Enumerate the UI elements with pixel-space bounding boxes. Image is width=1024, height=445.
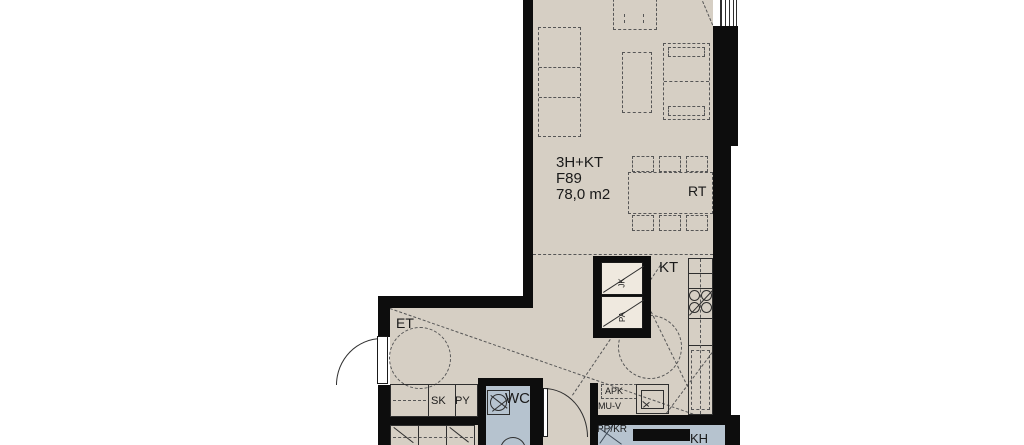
closet-rail	[393, 400, 426, 401]
stove-burner	[701, 302, 712, 313]
floor-plan: JK PA OH 3H+KT F89 78,0 m2 RT KT ET SK P…	[0, 0, 1024, 445]
wall	[530, 378, 543, 445]
unit-area: 78,0 m2	[556, 187, 610, 202]
dining-chair	[659, 156, 681, 172]
coffee-table	[622, 52, 652, 113]
room-label-dining: RT	[688, 184, 706, 198]
stove-burner	[689, 290, 700, 301]
room-label-living: OH	[676, 0, 699, 1]
room-label-wc: WC	[505, 391, 530, 406]
wall	[713, 26, 738, 146]
closet-divider	[428, 384, 429, 417]
window	[720, 0, 737, 26]
wall	[378, 385, 390, 445]
freezer-label: PA	[618, 307, 628, 323]
room-label-bathroom: KH	[690, 432, 708, 445]
sofa-divider-2	[539, 97, 580, 98]
wall	[523, 0, 533, 300]
upper-cabinet	[691, 350, 710, 410]
wall	[713, 146, 731, 424]
media-unit-shelf-1	[668, 47, 705, 57]
wall	[590, 383, 598, 445]
appliance-label-dishwasher: APK	[605, 387, 623, 396]
dining-chair	[632, 215, 654, 231]
closet-divider	[446, 425, 447, 445]
closet-label-py: PY	[455, 396, 470, 407]
wall	[478, 378, 486, 445]
entry-door-swing	[336, 338, 382, 385]
room-label-kitchen: KT	[659, 260, 678, 275]
sofa-divider-1	[539, 67, 580, 68]
wall	[378, 417, 486, 425]
table-top-mark-1	[624, 14, 625, 23]
appliance-label-microwave: MU-V	[598, 402, 621, 411]
table-top-mark-2	[643, 14, 644, 23]
ceiling-line-horizontal	[533, 254, 713, 255]
sofa	[538, 27, 581, 137]
wall	[633, 429, 690, 441]
room-label-hall: ET	[396, 316, 414, 330]
dining-chair	[632, 156, 654, 172]
media-unit-shelf-2	[668, 106, 705, 116]
entry-door-leaf	[377, 336, 388, 384]
closet-label-sk: SK	[431, 396, 446, 407]
dining-chair	[686, 215, 708, 231]
unit-type: 3H+KT	[556, 155, 603, 170]
appliance-label-laundry: PP/KR	[597, 425, 627, 435]
fridge-label: JK	[618, 273, 627, 289]
unit-code: F89	[556, 171, 582, 186]
dining-chair	[686, 156, 708, 172]
closet-divider	[418, 425, 419, 445]
turning-circle-hall	[389, 327, 451, 389]
table-top	[613, 0, 657, 30]
wall	[378, 296, 533, 308]
media-unit-divider	[664, 81, 709, 82]
dining-chair	[659, 215, 681, 231]
wall	[378, 296, 390, 337]
